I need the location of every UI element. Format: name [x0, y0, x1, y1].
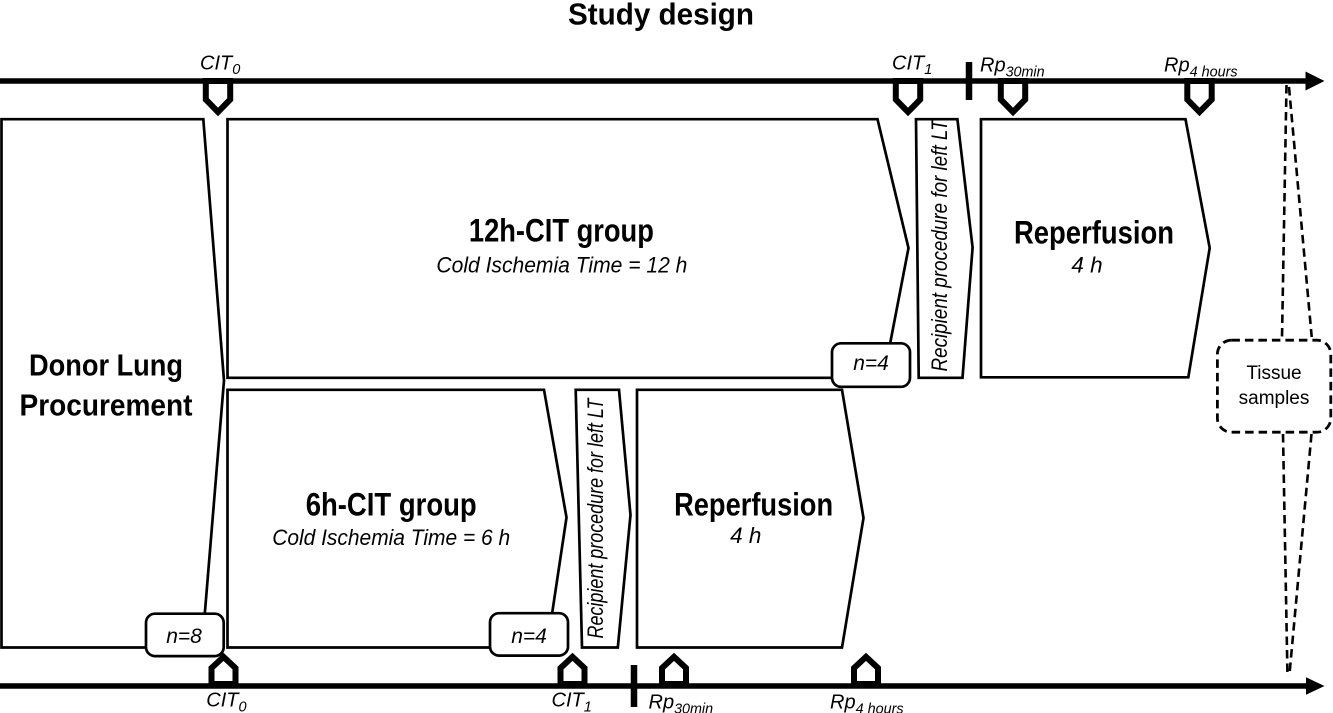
svg-text:Cold Ischemia Time = 6 h: Cold Ischemia Time = 6 h — [272, 525, 510, 550]
svg-text:Reperfusion: Reperfusion — [1014, 215, 1174, 251]
svg-text:Donor Lung: Donor Lung — [29, 348, 183, 383]
svg-text:n=4: n=4 — [511, 625, 547, 648]
svg-text:4 h: 4 h — [1071, 252, 1102, 277]
svg-text:Reperfusion: Reperfusion — [674, 487, 833, 523]
svg-text:Tissue: Tissue — [1246, 363, 1301, 384]
svg-text:Cold Ischemia Time = 12 h: Cold Ischemia Time = 12 h — [436, 253, 687, 278]
svg-text:Procurement: Procurement — [20, 387, 193, 422]
svg-text:12h-CIT group: 12h-CIT group — [469, 213, 654, 249]
svg-text:4 h: 4 h — [730, 523, 761, 548]
svg-text:Study design: Study design — [568, 0, 754, 32]
svg-text:n=8: n=8 — [166, 625, 202, 648]
svg-text:Recipient procedure for left L: Recipient procedure for left LT — [583, 397, 608, 638]
svg-text:samples: samples — [1239, 388, 1310, 409]
svg-text:Recipient procedure for left L: Recipient procedure for left LT — [927, 118, 952, 371]
svg-text:6h-CIT group: 6h-CIT group — [306, 487, 477, 523]
svg-text:n=4: n=4 — [853, 352, 889, 375]
